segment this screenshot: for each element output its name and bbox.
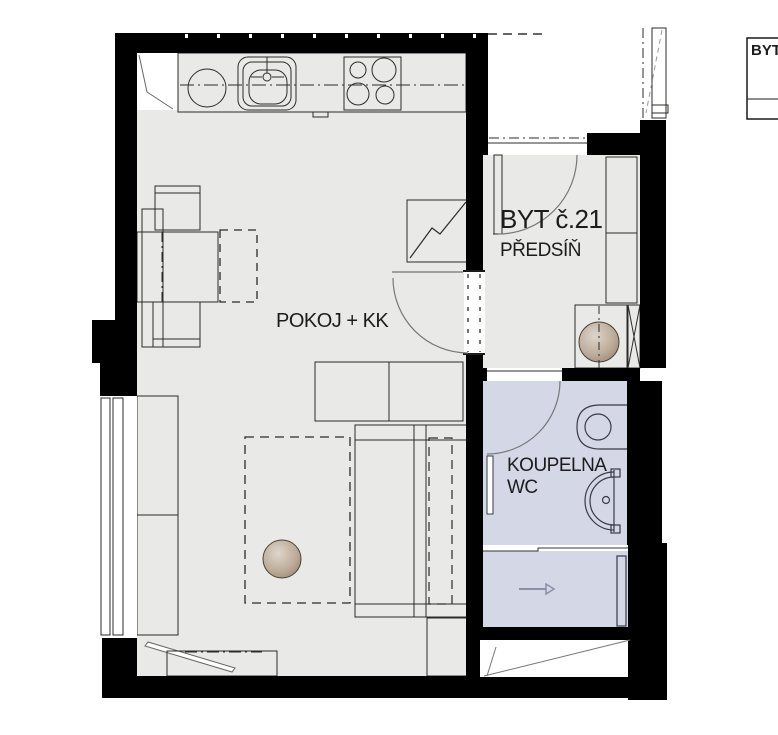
pokoj-label: POKOJ + KK bbox=[276, 310, 389, 332]
wall-lower-right bbox=[628, 543, 667, 700]
legend-box: BYT bbox=[747, 38, 778, 119]
wall-below-entry bbox=[480, 627, 642, 640]
wall-entrance-right bbox=[587, 133, 640, 155]
wall-right-upper bbox=[640, 118, 666, 368]
entry-lower-floor bbox=[483, 551, 628, 627]
wall-mid-upper bbox=[466, 33, 488, 155]
window-left bbox=[98, 396, 137, 638]
pokoj-floor bbox=[137, 53, 466, 676]
fridge-niche bbox=[137, 53, 178, 110]
legend-label: BYT bbox=[751, 42, 778, 59]
wall-left-mid bbox=[100, 363, 137, 396]
apartment-number-label: BYT č.21 bbox=[500, 204, 603, 234]
wall-bathroom-right bbox=[627, 381, 662, 545]
exterior-stair-slab bbox=[480, 640, 630, 677]
wall-pilaster bbox=[92, 320, 115, 363]
wall-top bbox=[115, 33, 487, 53]
floorplan-drawing: POKOJ + KK BYT č.21 PŘEDSÍŇ KOUPELNA WC … bbox=[0, 0, 778, 735]
wall-left-upper bbox=[115, 33, 137, 363]
wall-mid-center bbox=[466, 155, 483, 273]
window-top-right bbox=[640, 28, 668, 122]
predsin-label: PŘEDSÍŇ bbox=[500, 239, 581, 261]
round-table bbox=[263, 540, 301, 578]
wall-left-lower bbox=[102, 638, 137, 676]
wc-label: WC bbox=[507, 477, 538, 498]
koupelna-label: KOUPELNA bbox=[507, 455, 607, 476]
towel-radiator bbox=[487, 456, 493, 514]
wall-bottom bbox=[102, 676, 667, 698]
floorplan-page: POKOJ + KK BYT č.21 PŘEDSÍŇ KOUPELNA WC … bbox=[0, 0, 778, 735]
